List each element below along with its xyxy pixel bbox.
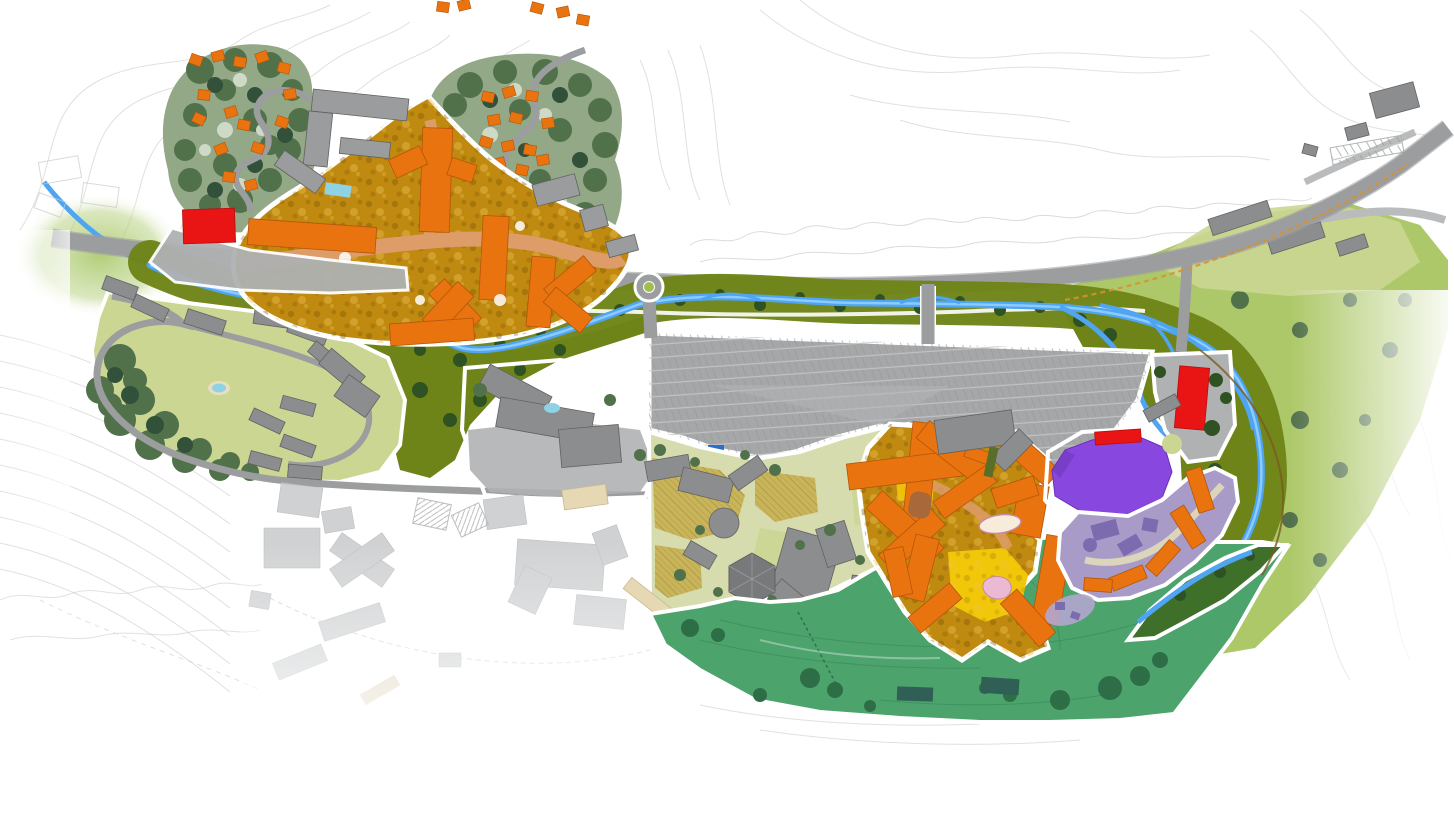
cabin: [237, 119, 251, 131]
proposed-building: [419, 128, 453, 233]
lavender-building: [1055, 602, 1065, 610]
swimming-pool: [544, 403, 560, 413]
cabin: [487, 114, 501, 126]
cabin: [436, 1, 449, 13]
cabin: [536, 154, 550, 166]
cabin: [222, 171, 235, 183]
lodge-building: [303, 111, 333, 167]
roundabout-island: [644, 282, 655, 293]
parking-access-road: [649, 298, 651, 338]
east-fade: [1290, 290, 1454, 710]
east-access-road: [1181, 262, 1187, 352]
proposed-building: [479, 215, 509, 300]
cabin: [576, 14, 590, 26]
cabin: [501, 140, 515, 152]
cabin: [233, 56, 247, 68]
cabin: [556, 6, 570, 18]
apron-lawn: [1162, 434, 1182, 454]
village-building: [709, 508, 739, 538]
teal-building: [980, 677, 1019, 696]
hotel-wing: [558, 424, 621, 467]
cabin: [523, 144, 537, 156]
red-building-west: [182, 208, 235, 244]
cabin: [481, 91, 495, 103]
masterplan-canvas: [0, 0, 1454, 814]
cabin: [198, 89, 211, 100]
southwest-fade: [240, 540, 670, 780]
cabin: [515, 164, 529, 176]
cabin: [283, 88, 297, 100]
masterplan-illustration: [0, 0, 1454, 814]
swimming-pool: [212, 384, 226, 393]
teal-building: [897, 686, 933, 701]
pink-pond: [983, 576, 1011, 599]
red-building-east: [1174, 366, 1209, 430]
cabin: [525, 90, 538, 102]
west-fade: [0, 230, 70, 540]
red-building-venue: [1095, 429, 1142, 445]
cabin: [541, 117, 554, 129]
